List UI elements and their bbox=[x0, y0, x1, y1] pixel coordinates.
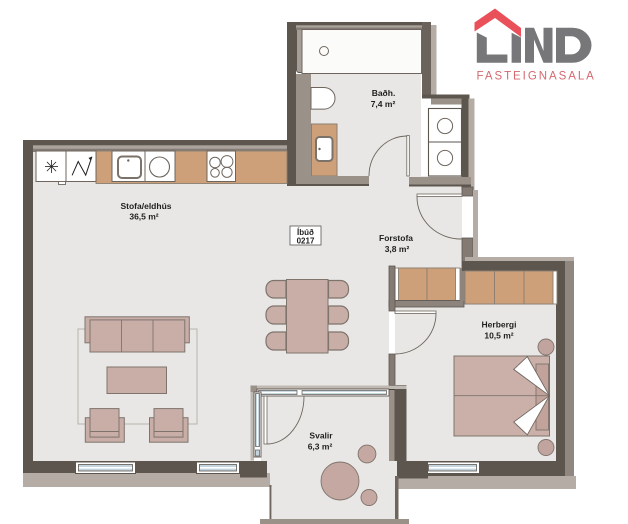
svg-text:3,8 m²: 3,8 m² bbox=[385, 244, 410, 254]
svg-text:Herbergi: Herbergi bbox=[482, 320, 517, 330]
svg-text:Baðh.: Baðh. bbox=[372, 88, 396, 98]
svg-text:FASTEIGNASALA: FASTEIGNASALA bbox=[477, 71, 596, 83]
svg-text:Svalir: Svalir bbox=[309, 431, 333, 441]
svg-text:0217: 0217 bbox=[297, 237, 315, 246]
svg-text:10,5 m²: 10,5 m² bbox=[484, 331, 513, 341]
svg-text:Stofa/eldhús: Stofa/eldhús bbox=[120, 201, 171, 211]
svg-text:6,3 m²: 6,3 m² bbox=[308, 442, 333, 452]
svg-text:7,4 m²: 7,4 m² bbox=[371, 99, 396, 109]
svg-text:Forstofa: Forstofa bbox=[379, 233, 413, 243]
svg-text:36,5 m²: 36,5 m² bbox=[129, 212, 158, 222]
